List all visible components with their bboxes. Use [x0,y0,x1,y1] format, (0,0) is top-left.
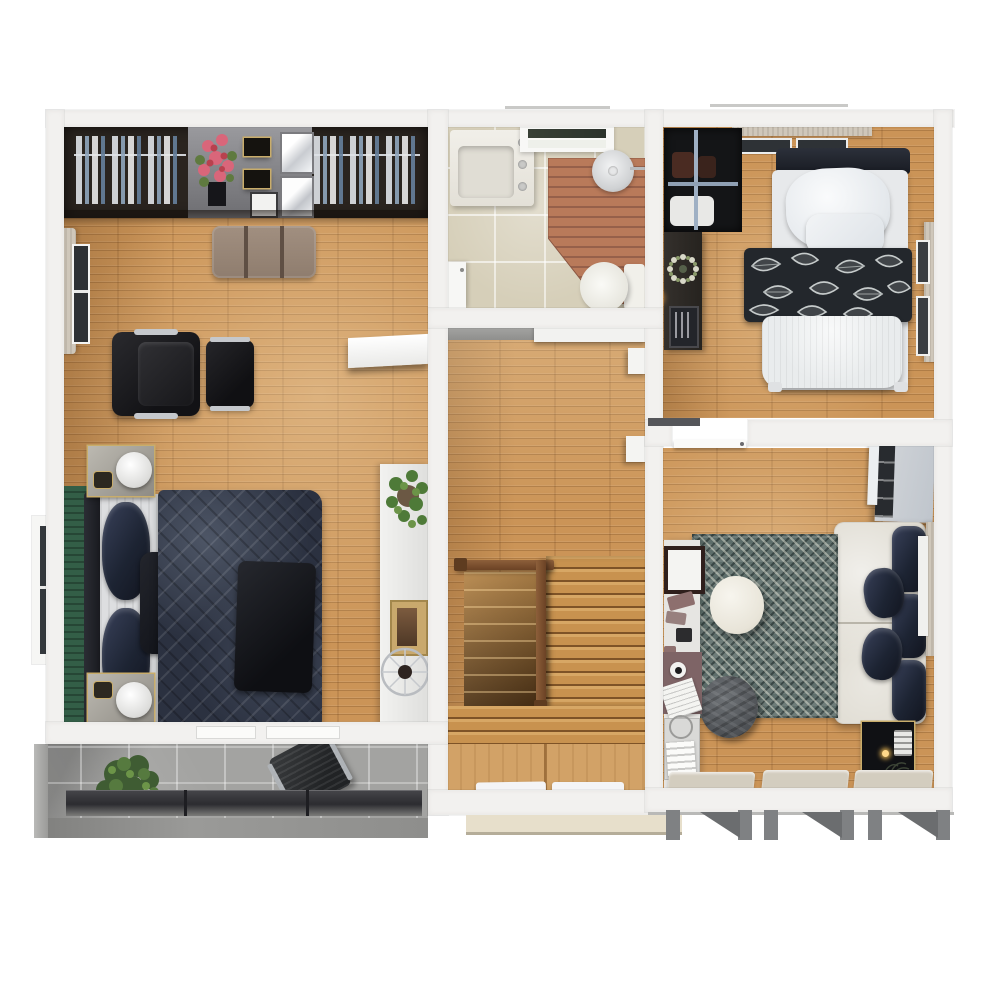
living-bottom-wall [645,788,952,812]
bed2-leaf-blanket [744,248,912,322]
window-mullion-upper [74,290,88,293]
living-door-handle [740,442,744,446]
awning-post-4 [840,810,854,840]
balcony-outer-edge-bottom [34,818,428,838]
notebook-2 [665,611,686,626]
gray-pouf [700,676,758,738]
nightstand-lamp-top [116,452,152,488]
awning-shadow-3 [898,812,938,838]
balcony-outer-edge-left [34,744,48,838]
trolley-handle [669,715,693,739]
bedroom2-picture-frame [669,306,699,348]
master-bottom-window-1 [196,726,256,739]
armchair-cushion [138,342,194,406]
sofa-seam [838,622,896,624]
bathroom-window [520,124,614,152]
bathroom-bottom-wall [428,308,663,328]
mirror-panel-top [280,132,314,174]
wardrobe-clothes-white [670,196,714,226]
bedroom2-right-window-2 [916,296,930,356]
egg-ottoman [710,576,764,634]
shower-arm [630,167,646,170]
hall-bottom-wall [428,790,680,815]
bed2-foot-left [768,382,782,392]
bench-strap-right [280,226,284,278]
awning-shadow-1 [700,812,740,838]
leaf-pattern [744,248,912,322]
wall-shelf [348,334,428,368]
book-trolley [664,718,700,780]
console-table [380,464,430,728]
stair-railing-vertical [536,560,546,710]
outer-left-wall [46,110,64,742]
potted-plant [382,466,430,536]
jewelry-box-top [244,138,270,156]
closet-front-shadow [64,210,428,226]
ottoman-frame-bottom [210,406,250,411]
living-cabinet [875,439,936,523]
side-table [862,722,914,772]
awning-post-1 [666,810,680,840]
shower-head-center [608,166,618,176]
bench-strap-left [244,226,248,278]
planter-divider-1 [184,790,187,816]
jewelry-box-bottom [244,170,270,188]
living-picture-frame [664,546,705,594]
hall-right-wall [645,110,663,815]
nightstand-decor-bottom [94,682,112,698]
master-bottom-window-2 [266,726,340,739]
stairwell-opening [464,572,540,706]
eave-line-bathroom [505,106,610,109]
footstool-ottoman [206,340,254,408]
wardrobe-clothes-dark2 [698,156,716,178]
ottoman-frame-top [210,337,250,342]
bathroom-door [446,262,466,308]
bedroom2-bed [744,148,912,392]
wreath-decor [666,252,700,286]
stair-treads-upper [546,556,645,706]
bedroom2-right-window-1 [916,240,930,284]
armchair-frame-bottom [134,413,178,419]
awning-post-6 [936,810,950,840]
trolley-books [666,740,696,776]
living-open-door [674,440,746,448]
bedroom2-bottom-wall-right [748,420,952,446]
awning-post-2 [738,810,752,840]
awning-post-5 [868,810,882,840]
nightstand-top [88,446,154,496]
bed2-foot-right [894,382,908,392]
master-window-glass-upper [72,244,90,344]
nightstand-decor-top [94,472,112,488]
notebook-dark [676,628,692,642]
planter-divider-2 [306,790,309,816]
railing-post-top [454,558,467,571]
awning-post-3 [764,810,778,840]
armchair-frame-top [134,329,178,335]
wardrobe-rail-cross [668,182,738,186]
bathroom-door-handle [460,268,464,272]
outer-right-wall [934,110,952,812]
stairwell-treads [464,572,540,706]
desk-cup-coffee [675,667,682,674]
bench [212,226,316,278]
living-doorway-threshold [648,418,700,426]
cabinet-front-panel [867,445,879,505]
living-sofa [834,522,926,724]
bedroom2-desk [664,232,702,350]
stair-treads-lower [446,706,645,744]
outer-top-wall [46,110,954,127]
armchair [112,332,200,416]
hanging-clothes-left [76,136,184,204]
nightstand-bottom [88,674,154,724]
flower-bouquet [192,130,240,210]
shower-head [592,150,634,192]
exterior-step [466,815,682,835]
hanging-clothes-right [314,136,420,204]
bed2-duvet [762,316,902,388]
living-desk [664,540,700,790]
master-hall-wall [428,110,448,815]
bathroom-window-glass [528,129,606,138]
balcony-planter-box [66,790,422,816]
vanity-island [188,126,312,218]
bedroom2-open-wardrobe [664,128,742,232]
faucet-knob-2 [518,160,527,169]
bed-throw-dark [234,561,316,694]
toilet-bowl [580,262,628,312]
awning-shadow-2 [802,812,842,838]
wardrobe-closet [64,126,428,218]
floor-plan-render [0,0,1000,1000]
decorative-wheel [380,636,430,706]
vanity-sink [458,146,514,198]
side-table-radio [894,730,912,756]
wardrobe-clothes-dark [672,152,694,178]
frame-art-streaks [675,312,691,338]
faucet-knob-3 [518,182,527,191]
eave-line-bedroom2 [710,104,848,107]
bathroom-window-sill [528,140,606,148]
living-right-window [918,536,928,636]
wardrobe-rail-vertical [694,130,698,230]
nightstand-lamp-bottom [116,682,152,718]
